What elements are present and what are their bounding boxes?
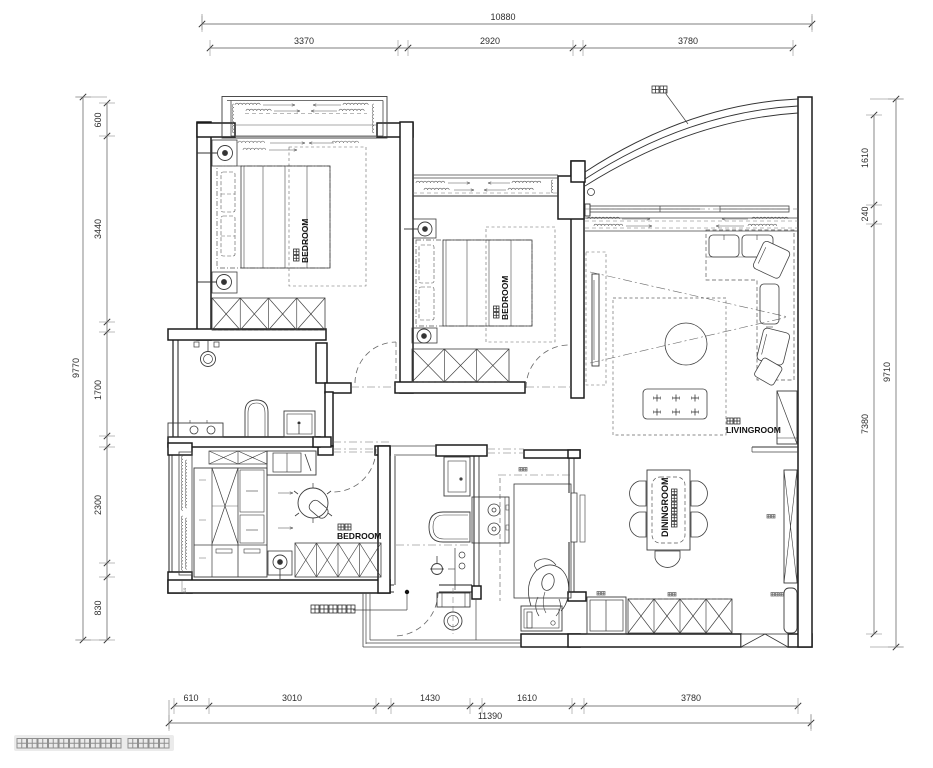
svg-text:9770: 9770: [71, 358, 81, 378]
svg-text:BEDROOM: BEDROOM: [500, 276, 510, 320]
svg-text:110: 110: [182, 587, 187, 594]
svg-text:BEDROOM: BEDROOM: [300, 219, 310, 263]
svg-text:3440: 3440: [93, 219, 103, 239]
svg-text:LIVINGROOM: LIVINGROOM: [726, 425, 781, 435]
svg-text:2300: 2300: [93, 495, 103, 515]
svg-text:600: 600: [93, 112, 103, 127]
svg-text:1430: 1430: [420, 693, 440, 703]
svg-text:11390: 11390: [478, 711, 502, 721]
svg-text:610: 610: [183, 693, 198, 703]
svg-text:1700: 1700: [93, 380, 103, 400]
svg-text:1610: 1610: [517, 693, 537, 703]
svg-text:3780: 3780: [678, 36, 698, 46]
svg-text:DININGROOM: DININGROOM: [660, 478, 670, 538]
svg-text:7380: 7380: [860, 414, 870, 434]
svg-text:BEDROOM: BEDROOM: [337, 531, 381, 541]
svg-text:830: 830: [93, 600, 103, 615]
svg-text:3010: 3010: [282, 693, 302, 703]
svg-text:1610: 1610: [860, 148, 870, 168]
svg-text:3370: 3370: [294, 36, 314, 46]
svg-text:3780: 3780: [681, 693, 701, 703]
svg-text:2920: 2920: [480, 36, 500, 46]
svg-text:9710: 9710: [882, 362, 892, 382]
svg-text:10880: 10880: [490, 12, 515, 22]
svg-text:240: 240: [860, 206, 870, 221]
